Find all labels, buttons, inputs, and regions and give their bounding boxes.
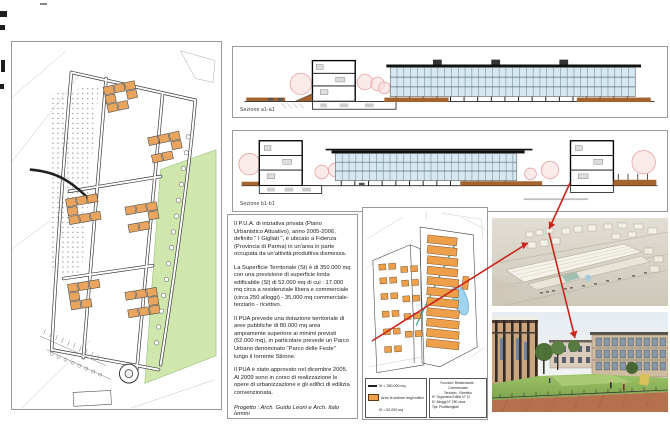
scan-mark bbox=[40, 3, 47, 5]
st-line-swatch bbox=[368, 385, 377, 387]
masterplan-drawing bbox=[363, 208, 487, 376]
housing-cluster bbox=[125, 202, 161, 233]
site-plan-panel bbox=[11, 41, 222, 410]
render-aerial-model bbox=[492, 218, 668, 306]
section-a1-drawing bbox=[233, 47, 667, 117]
housing-cluster bbox=[148, 131, 184, 163]
residential-blocks bbox=[379, 262, 423, 353]
glass-elevation bbox=[326, 150, 543, 186]
legend-item: St = 350.000 mq bbox=[368, 384, 424, 388]
masterplan-legend: St = 350.000 mq Aree di sedime degli edi… bbox=[365, 378, 487, 418]
description-paragraph: Il PUA prevede una dotazione territorial… bbox=[234, 316, 351, 361]
blank-swatch bbox=[368, 407, 377, 412]
project-credits: Progetto : Arch. Guido Leoni e Arch. Ita… bbox=[234, 405, 351, 417]
section-a1-panel: Sezione a1-a1 bbox=[232, 46, 668, 118]
cut-section-building bbox=[259, 141, 321, 194]
info-line: Tipi: Plurifamigliari bbox=[432, 405, 484, 410]
left-building bbox=[492, 316, 538, 384]
scan-mark bbox=[0, 84, 4, 89]
site-plan-drawing bbox=[12, 42, 221, 409]
legend-label: Sl = 52.000 mq bbox=[379, 408, 403, 412]
section-b1-drawing bbox=[233, 131, 667, 211]
building-area-swatch bbox=[368, 394, 379, 401]
aerial-model-image bbox=[492, 218, 668, 306]
lot-outline bbox=[73, 390, 111, 406]
housing-cluster bbox=[103, 81, 139, 113]
description-paragraph: La Superficie Territoriale (St) è di 350… bbox=[234, 265, 351, 310]
masterplan-infobox: Funzioni: Residenziale - Commerciale Ter… bbox=[429, 378, 487, 418]
micro-caption-line bbox=[524, 198, 588, 200]
legend-item: Sl = 52.000 mq bbox=[368, 407, 424, 412]
scan-mark bbox=[1, 60, 5, 72]
glass-elevation bbox=[384, 60, 650, 102]
deck-left bbox=[242, 182, 260, 186]
perspective-image bbox=[492, 312, 668, 412]
info-line: Funzioni: Residenziale - Commerciale bbox=[432, 381, 484, 391]
masterplan-panel: St = 350.000 mq Aree di sedime degli edi… bbox=[362, 207, 488, 420]
roundabout bbox=[119, 364, 138, 383]
project-description: Il P.U.A. di iniziativa privata (Piano U… bbox=[227, 214, 358, 419]
scan-mark bbox=[0, 11, 7, 17]
section-b1-caption: Sezione b1-b1 bbox=[240, 201, 275, 207]
model-pond bbox=[585, 275, 591, 281]
legend-label: Aree di sedime degli edifici bbox=[381, 396, 424, 400]
legend-label: St = 350.000 mq bbox=[379, 384, 405, 388]
description-paragraph: Il PUA è stato approvato nel dicembre 20… bbox=[234, 367, 351, 397]
section-a1-caption: Sezione a1-a1 bbox=[240, 107, 275, 113]
project-board: Sezione a1-a1 bbox=[0, 0, 670, 446]
render-perspective bbox=[492, 312, 668, 412]
legend-box: St = 350.000 mq Aree di sedime degli edi… bbox=[365, 378, 427, 418]
legend-item: Aree di sedime degli edifici bbox=[368, 394, 424, 401]
scan-mark bbox=[0, 25, 5, 30]
housing-cluster bbox=[67, 279, 102, 309]
description-paragraph: Il P.U.A. di iniziativa privata (Piano U… bbox=[234, 221, 351, 259]
yellow-panel bbox=[639, 373, 649, 385]
section-b1-panel: Sezione b1-b1 bbox=[232, 130, 668, 212]
